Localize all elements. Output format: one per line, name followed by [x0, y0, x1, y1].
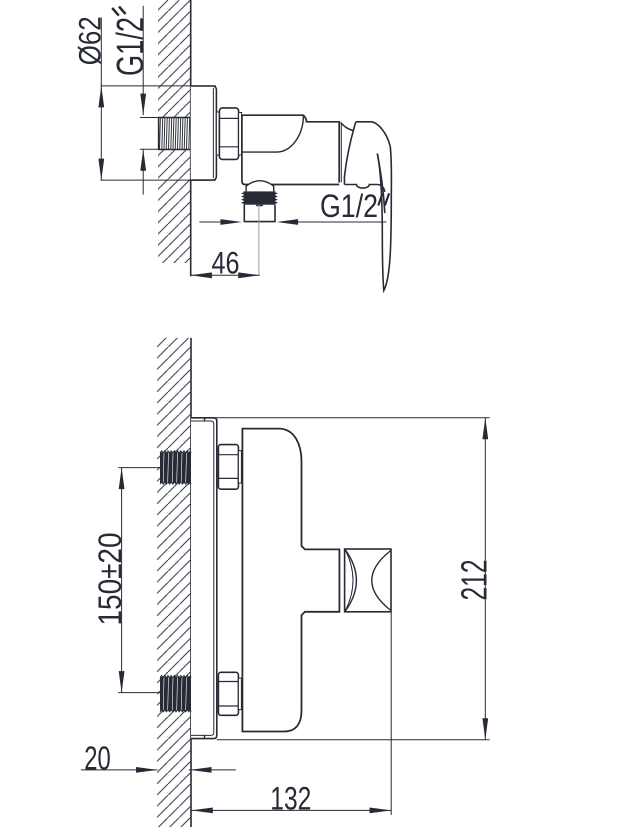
svg-text:212: 212: [454, 560, 495, 601]
svg-text:Ø62: Ø62: [72, 16, 108, 65]
svg-text:20: 20: [84, 740, 111, 777]
svg-text:150±20: 150±20: [92, 533, 128, 626]
svg-text:G1/2: G1/2: [320, 188, 378, 224]
svg-text:G1/2: G1/2: [109, 17, 152, 76]
svg-text:132: 132: [270, 780, 311, 816]
svg-text:46: 46: [212, 244, 240, 280]
